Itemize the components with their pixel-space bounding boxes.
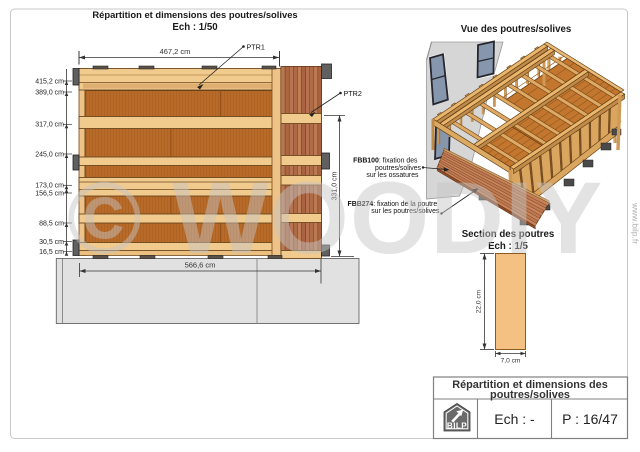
svg-text:Ech : 1/50: Ech : 1/50: [172, 22, 217, 33]
svg-text:7,0 cm: 7,0 cm: [501, 358, 521, 365]
svg-text:415,2 cm: 415,2 cm: [35, 78, 64, 85]
svg-text:173,0 cm: 173,0 cm: [35, 183, 64, 190]
svg-text:www.bilp.fr: www.bilp.fr: [631, 202, 640, 244]
svg-text:389,0 cm: 389,0 cm: [35, 89, 64, 96]
svg-text:30,5 cm: 30,5 cm: [39, 239, 64, 246]
svg-text:Répartition et dimensions des: Répartition et dimensions des poutres/so…: [92, 9, 297, 20]
svg-text:Ech : -: Ech : -: [494, 411, 535, 427]
svg-text:poutres/solives: poutres/solives: [490, 389, 570, 401]
svg-text:Vue des poutres/solives: Vue des poutres/solives: [461, 24, 572, 35]
svg-text:156,5 cm: 156,5 cm: [35, 190, 64, 197]
svg-text:467,2 cm: 467,2 cm: [160, 47, 191, 56]
svg-text:BILP: BILP: [447, 422, 467, 431]
svg-text:PTR2: PTR2: [344, 89, 362, 98]
svg-text:© WOODIY: © WOODIY: [67, 161, 603, 275]
svg-text:317,0 cm: 317,0 cm: [35, 122, 64, 129]
svg-text:PTR1: PTR1: [247, 43, 265, 52]
svg-text:22,0 cm: 22,0 cm: [476, 289, 483, 313]
svg-text:245,0 cm: 245,0 cm: [35, 151, 64, 158]
svg-text:88,5 cm: 88,5 cm: [39, 220, 64, 227]
svg-text:P : 16/47: P : 16/47: [562, 411, 618, 427]
svg-text:16,5 cm: 16,5 cm: [39, 249, 64, 256]
